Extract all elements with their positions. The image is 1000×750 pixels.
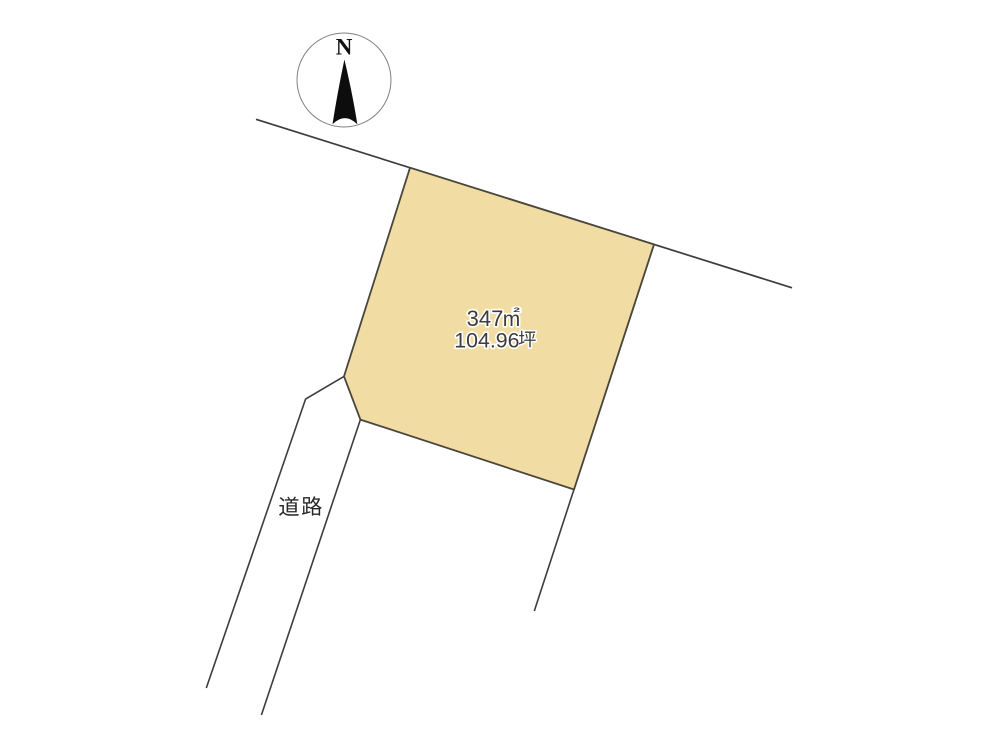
svg-text:347: 347 — [467, 306, 504, 331]
svg-text:104.96: 104.96 — [454, 328, 519, 352]
svg-text:2: 2 — [513, 307, 521, 314]
svg-text:N: N — [336, 35, 353, 60]
